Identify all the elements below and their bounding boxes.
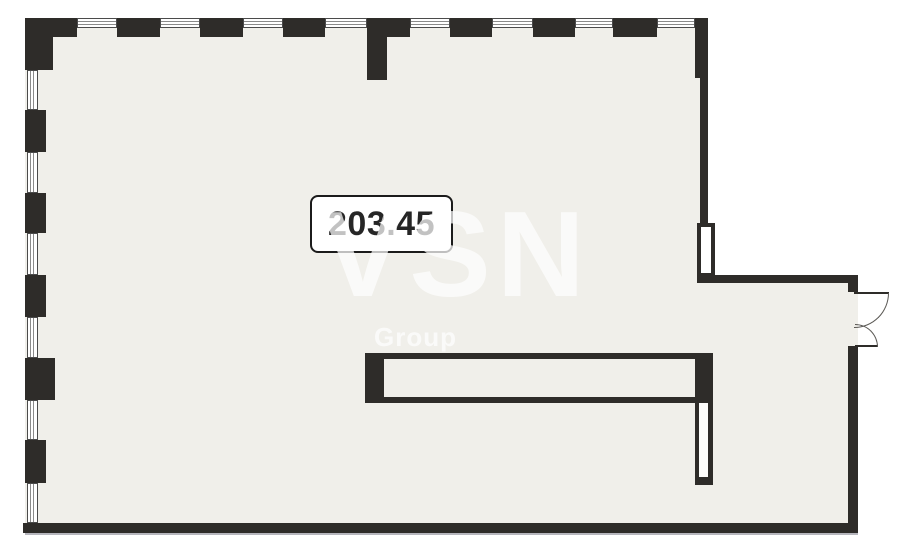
window-segment: [77, 18, 117, 28]
window-segment: [27, 400, 38, 440]
counter-end-cap: [365, 353, 384, 403]
wall-segment: [450, 18, 492, 37]
window-segment: [27, 70, 38, 110]
window-segment: [243, 18, 283, 28]
wall-segment: [117, 18, 160, 37]
area-label-value: 203.45: [328, 205, 435, 244]
wall-segment: [848, 346, 858, 533]
window-segment: [160, 18, 200, 28]
window-segment: [27, 152, 38, 193]
wall-segment: [613, 18, 657, 37]
floor-area: [697, 275, 858, 533]
window-segment: [27, 233, 38, 275]
counter-end-block: [695, 353, 713, 403]
wall-segment: [695, 18, 708, 78]
window-segment: [492, 18, 533, 28]
wall-segment: [25, 358, 55, 400]
wall-segment: [283, 18, 325, 37]
floor-area: [25, 18, 708, 533]
wall-segment: [200, 18, 243, 37]
window-segment: [27, 317, 38, 358]
wall-segment: [700, 78, 708, 224]
wall-shadow-line: [25, 533, 858, 535]
wall-segment: [848, 275, 858, 292]
wall-segment: [25, 110, 46, 152]
window-segment: [325, 18, 367, 28]
window-segment: [575, 18, 613, 28]
window-segment: [27, 483, 38, 523]
interior-counter: [365, 353, 713, 403]
wall-segment: [697, 275, 858, 283]
area-label-badge[interactable]: 203.45: [310, 195, 453, 253]
door-frame-element: [697, 223, 715, 277]
interior-partition: [695, 403, 713, 485]
wall-segment: [23, 523, 858, 533]
window-segment: [410, 18, 450, 28]
wall-segment: [25, 193, 46, 233]
wall-segment: [533, 18, 575, 37]
window-segment: [657, 18, 695, 28]
floor-plan-canvas: 203.45 VSN Group: [0, 0, 903, 553]
wall-segment: [367, 18, 410, 37]
door-swing-arc: [854, 293, 889, 328]
wall-segment: [25, 275, 46, 317]
wall-segment: [25, 18, 53, 70]
door-swing-arc: [855, 324, 878, 347]
wall-segment: [25, 440, 46, 483]
wall-segment: [367, 37, 387, 80]
